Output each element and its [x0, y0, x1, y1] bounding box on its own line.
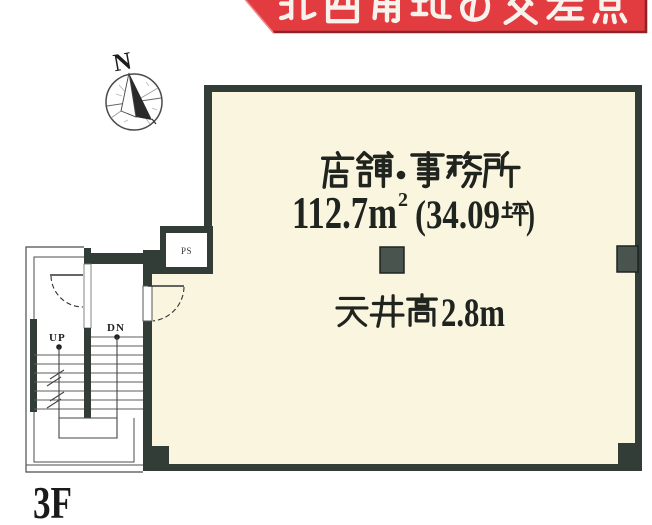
svg-text:2: 2 — [398, 189, 408, 211]
svg-text:(34.09: (34.09 — [415, 192, 500, 237]
svg-text:UP: UP — [49, 332, 66, 344]
svg-text:112.7m: 112.7m — [292, 187, 397, 238]
svg-text:DN: DN — [107, 322, 125, 334]
svg-text:3F: 3F — [33, 477, 72, 520]
svg-text:): ) — [526, 192, 535, 237]
svg-text:2.8m: 2.8m — [441, 290, 505, 335]
svg-text:PS: PS — [181, 246, 192, 256]
